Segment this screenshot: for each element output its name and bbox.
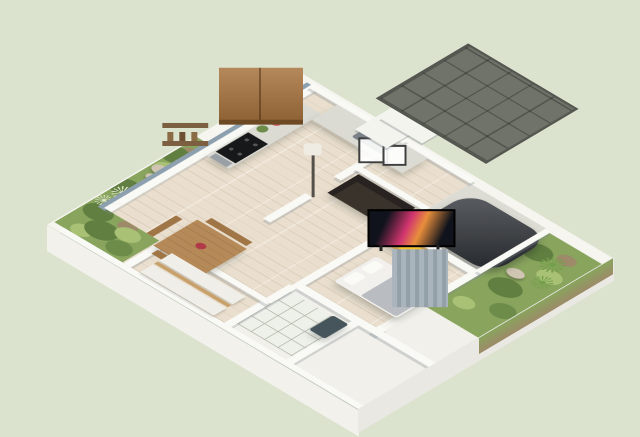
wall-matroom-west [124,238,173,267]
wall-bedroom-east-b [369,325,387,335]
dining-bench-end [146,215,182,236]
dining-bench-south [151,250,198,278]
oven-front [209,153,232,167]
wall-exterior-south [59,228,364,409]
bed-pillow-1 [361,260,385,274]
rock-west-2 [143,172,162,183]
agave-plant-2 [527,273,558,291]
dining-bench-north [205,218,252,246]
agave-plant-1 [534,254,571,276]
floor-mat-1 [159,253,245,304]
floorplan-3d-render [0,0,640,417]
bath-bench-tub [309,315,349,338]
rock-west-1 [148,163,172,177]
wall-matroom-north [161,238,273,304]
wall-bathroom-west [224,284,296,327]
flower-centerpiece [193,241,209,250]
sofa-arm-left [327,174,364,196]
bed-pillow-2 [342,271,366,285]
wall-bathroom-east [286,321,358,364]
dining-table [154,220,247,275]
plant-pot-2 [106,188,126,204]
wall-kitchen-east-b [263,193,312,222]
